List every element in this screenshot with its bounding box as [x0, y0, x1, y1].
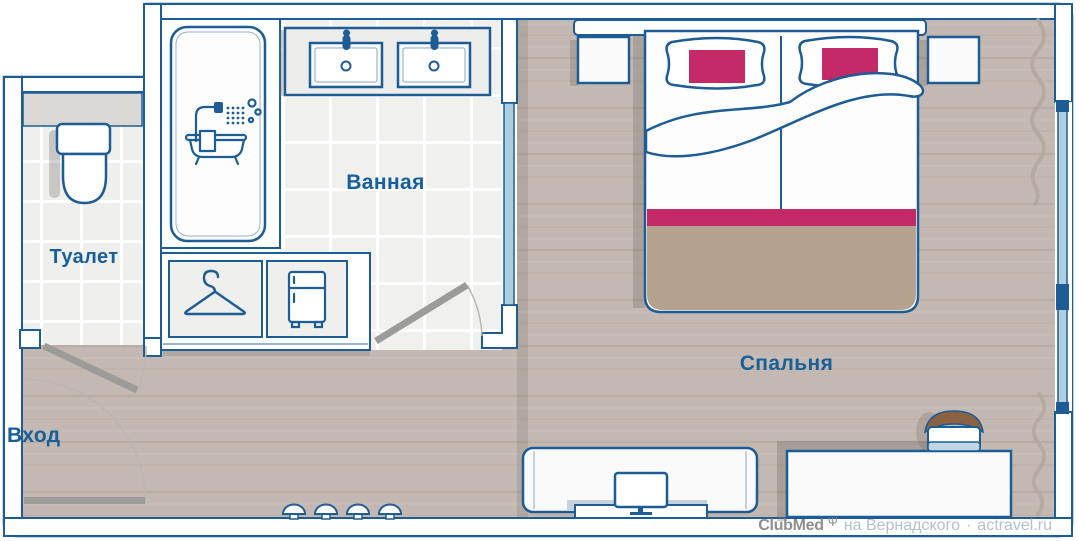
chair: [916, 411, 983, 452]
watermark-brand: ClubMed: [758, 517, 823, 535]
pillow-left: [667, 38, 765, 89]
room-label-entrance: Вход: [7, 424, 97, 448]
bed-stripe-magenta: [647, 209, 916, 226]
bed-blanket-tan: [647, 226, 916, 310]
watermark: ClubMedΨ на Вернадского · actravel.ru: [758, 517, 1052, 535]
watermark-separator: ·: [966, 517, 971, 535]
fridge-icon: [289, 272, 325, 327]
watermark-location: на Вернадского: [844, 517, 960, 535]
bedroom-wall-shadow: [517, 19, 528, 518]
floor-plan-image: Туалет Ванная Спальня Вход ClubMedΨ на В…: [0, 0, 1080, 541]
double-bed: [633, 31, 923, 312]
watermark-site: actravel.ru: [977, 517, 1052, 535]
sink-vanity: [279, 28, 490, 96]
cistern-shelf: [23, 93, 142, 126]
room-label-bedroom: Спальня: [734, 352, 839, 376]
room-label-bathroom: Ванная: [333, 171, 438, 195]
wardrobe-unit: [161, 253, 370, 356]
clubmed-trident-icon: Ψ: [828, 515, 838, 529]
desk: [787, 451, 1011, 517]
bed-shadow: [633, 36, 645, 308]
tv-console: [523, 448, 757, 518]
bathroom-glass-wall: [504, 103, 514, 305]
nightstand-left: [578, 37, 629, 83]
room-label-toilet: Туалет: [34, 246, 134, 269]
window-glass: [1058, 102, 1067, 412]
toilet: [57, 124, 110, 203]
chair-seat-front: [928, 442, 980, 451]
floor-plan-drawing: [0, 0, 1080, 541]
bathtub-alcove: [161, 19, 280, 248]
nightstand-right: [928, 37, 979, 83]
